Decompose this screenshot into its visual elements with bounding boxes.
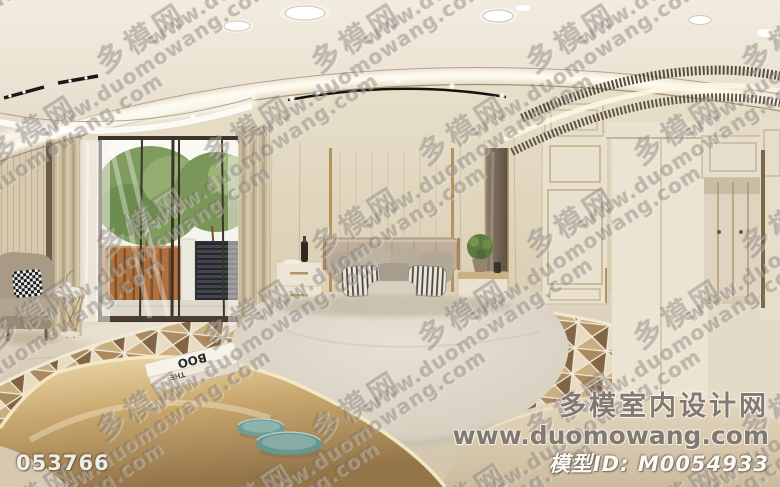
wardrobe-area xyxy=(606,118,780,436)
scene-id-overlay: 053766 xyxy=(16,451,110,475)
drawer-handle xyxy=(290,272,308,275)
bedroom-door xyxy=(542,104,608,304)
model-id-value: M0054933 xyxy=(638,452,769,476)
gold-top-band xyxy=(458,272,508,279)
fence-pillar xyxy=(181,239,195,307)
branding-site-name: 多模室内设计网 xyxy=(453,392,769,422)
model-id-label: 模型ID: xyxy=(549,452,630,476)
bronze-strip xyxy=(761,150,765,308)
branding-block: 多模室内设计网 www.duomowang.com 模型ID: M0054933 xyxy=(453,392,769,477)
panorama-bedroom-image: BOO THE xyxy=(0,0,780,487)
table-vase xyxy=(64,282,71,291)
branding-model-id: 模型ID: M0054933 xyxy=(453,453,769,477)
decor-bottle xyxy=(301,241,308,262)
decor-dish xyxy=(283,260,301,265)
curtain-drape-left xyxy=(52,130,82,336)
branding-site-url: www.duomowang.com xyxy=(453,422,769,450)
wardrobe-cornice xyxy=(606,122,714,139)
closet-header xyxy=(702,136,764,178)
closet-opening xyxy=(704,178,760,302)
wall-gold-strip-left xyxy=(329,148,332,298)
houndstooth-pillow xyxy=(12,269,44,299)
window xyxy=(52,126,270,348)
decor-vase xyxy=(494,262,501,273)
wardrobe-column xyxy=(612,134,708,432)
drawer-handle xyxy=(290,294,308,297)
